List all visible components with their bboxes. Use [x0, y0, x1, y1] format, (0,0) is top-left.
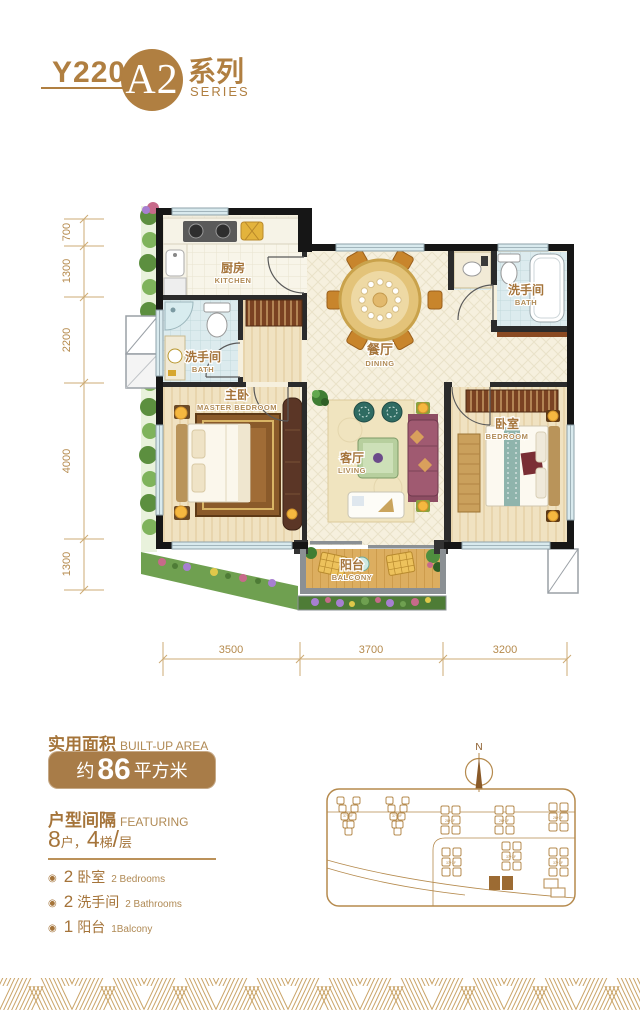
area-value: 86 — [97, 755, 130, 785]
building-label: 37+3F — [553, 861, 563, 865]
label-kitchen-zh: 厨房 — [221, 260, 245, 275]
dim-label: 4000 — [61, 449, 73, 473]
building-label: 37+3F — [506, 855, 516, 859]
dim-label: 1300 — [61, 259, 73, 283]
label-living-en: LIVING — [338, 466, 366, 475]
feature-bedrooms: ◉2卧室2 Bedrooms — [48, 864, 182, 889]
window — [567, 425, 574, 520]
siteplan-roads — [327, 812, 575, 906]
units-per-floor: 8户，4梯/层 — [48, 826, 132, 853]
building — [544, 879, 558, 888]
balcony-planter — [298, 596, 446, 610]
dim-bottom: 3500 3700 3200 — [159, 642, 571, 676]
stair-shaft — [126, 316, 158, 388]
feature-list: ◉2卧室2 Bedrooms ◉2洗手间2 Bathrooms ◉1阳台1Bal… — [48, 864, 182, 939]
building-label: 26+3F — [499, 819, 509, 823]
lamp — [548, 411, 558, 421]
window — [156, 425, 163, 515]
dim-label: 700 — [61, 223, 73, 241]
lamp — [418, 403, 428, 413]
basin — [168, 349, 182, 363]
bullet-icon: ◉ — [48, 873, 57, 884]
building-label: 26+3F — [445, 819, 455, 823]
lamp — [175, 506, 187, 518]
area-badge: 约86平方米 — [48, 751, 216, 789]
households-count: 8 — [48, 826, 61, 852]
label-master-en: MASTER BEDROOM — [197, 403, 277, 412]
label-bedroom-en: BEDROOM — [486, 432, 529, 441]
building-label: 37+3F — [343, 814, 353, 818]
label-living-zh: 客厅 — [339, 450, 364, 465]
headboard — [176, 424, 188, 502]
label-kitchen-en: KITCHEN — [215, 276, 252, 285]
garden-bottom-left — [141, 552, 298, 610]
basin — [463, 262, 481, 276]
area-prefix: 约 — [76, 757, 94, 783]
label-bath-right-zh: 洗手间 — [508, 282, 544, 297]
lamp — [548, 511, 558, 521]
dim-label: 3700 — [359, 644, 383, 656]
feature-bathrooms: ◉2洗手间2 Bathrooms — [48, 889, 182, 914]
building — [551, 888, 565, 897]
dim-label: 3200 — [493, 644, 517, 656]
dim-label: 2200 — [61, 328, 73, 352]
utility-platform — [548, 549, 578, 593]
dim-label: 1300 — [61, 552, 73, 576]
window — [156, 310, 163, 376]
window — [462, 542, 550, 549]
highlighted-building — [502, 876, 513, 890]
toilet — [501, 262, 517, 284]
window — [498, 244, 548, 251]
building-label: 37+3F — [446, 861, 456, 865]
wardrobe — [466, 390, 558, 412]
compass: N — [466, 742, 493, 792]
label-balcony-en: BALCONY — [332, 573, 373, 582]
window — [172, 208, 228, 215]
area-unit: 平方米 — [134, 757, 188, 783]
toilet — [207, 313, 227, 337]
window — [336, 244, 424, 251]
lamp — [175, 407, 187, 419]
label-bedroom-zh: 卧室 — [495, 416, 519, 431]
sofa — [408, 420, 438, 496]
dim-label: 3500 — [219, 644, 243, 656]
pouf — [354, 402, 374, 422]
bullet-icon: ◉ — [48, 898, 57, 909]
lifts-count: 4 — [87, 826, 100, 852]
compass-north-label: N — [475, 742, 482, 753]
wave-pattern — [0, 978, 640, 1010]
dresser — [458, 434, 480, 512]
window — [172, 542, 292, 549]
corridor-wardrobe — [246, 300, 302, 326]
pouf — [382, 402, 402, 422]
lounge-mat — [386, 551, 415, 575]
floorplan-page: Y220 A2 系列 SERIES — [0, 0, 640, 1010]
households-unit: 户 — [61, 835, 74, 850]
appliance — [164, 278, 186, 297]
label-balcony-zh: 阳台 — [340, 557, 364, 572]
bedroom-furniture — [458, 390, 560, 522]
features-divider — [48, 858, 216, 860]
label-dining-en: DINING — [365, 359, 394, 368]
label-bath-left-en: BATH — [192, 365, 214, 374]
threshold — [497, 332, 567, 337]
siteplan: 37+3F 37+3F 26+3F 26+3F 26+3F 37+3F 37+3… — [327, 789, 575, 906]
building-label: 37+3F — [392, 814, 402, 818]
lifts-unit: 梯 — [100, 835, 113, 850]
bullet-icon: ◉ — [48, 923, 57, 934]
highlighted-building — [489, 876, 500, 890]
label-dining-zh: 餐厅 — [366, 342, 393, 357]
feature-balcony: ◉1阳台1Balcony — [48, 914, 182, 939]
floor-unit: 层 — [119, 835, 132, 850]
siteplan-boundary — [327, 789, 575, 906]
building-label: 26+3F — [553, 816, 563, 820]
label-bath-right-en: BATH — [515, 298, 537, 307]
lamp — [418, 501, 428, 511]
separator: ， — [74, 835, 87, 850]
dim-left: 700 1300 2200 4000 1300 — [61, 215, 104, 594]
living-room-furniture — [312, 390, 438, 522]
headboard — [548, 426, 560, 506]
label-bath-left-zh: 洗手间 — [185, 349, 221, 364]
label-master-zh: 主卧 — [225, 387, 249, 402]
compass-needle — [476, 757, 483, 789]
